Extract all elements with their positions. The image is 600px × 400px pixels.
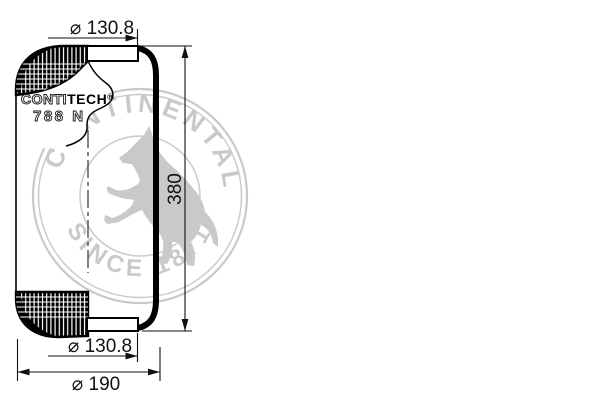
logo-brand-solid: TECH [67,91,107,107]
arrowhead [182,319,189,331]
bottom-corrugated-cap [16,292,88,337]
registered-mark: ® [107,92,114,102]
drawing-canvas: CONTINENTAL SINCE 1871 [0,0,600,400]
arrowhead [182,46,189,58]
svg-text:CONTITECH®: CONTITECH® [21,91,114,107]
dimension-height: 380 [165,173,186,205]
logo-brand-outline: CONTI [21,91,67,107]
dimension-top-diameter: ⌀ 130.8 [70,18,134,39]
arrowhead [18,369,30,376]
bottom-bead-plate [87,318,138,331]
top-bead-plate [87,46,138,61]
dimension-base-diameter: ⌀ 190 [72,374,120,395]
model-number: 788 N [33,108,86,125]
dimension-bottom-diameter: ⌀ 130.8 [68,336,132,357]
arrowhead [148,369,160,376]
air-spring-technical-drawing: CONTINENTAL SINCE 1871 [0,0,600,400]
